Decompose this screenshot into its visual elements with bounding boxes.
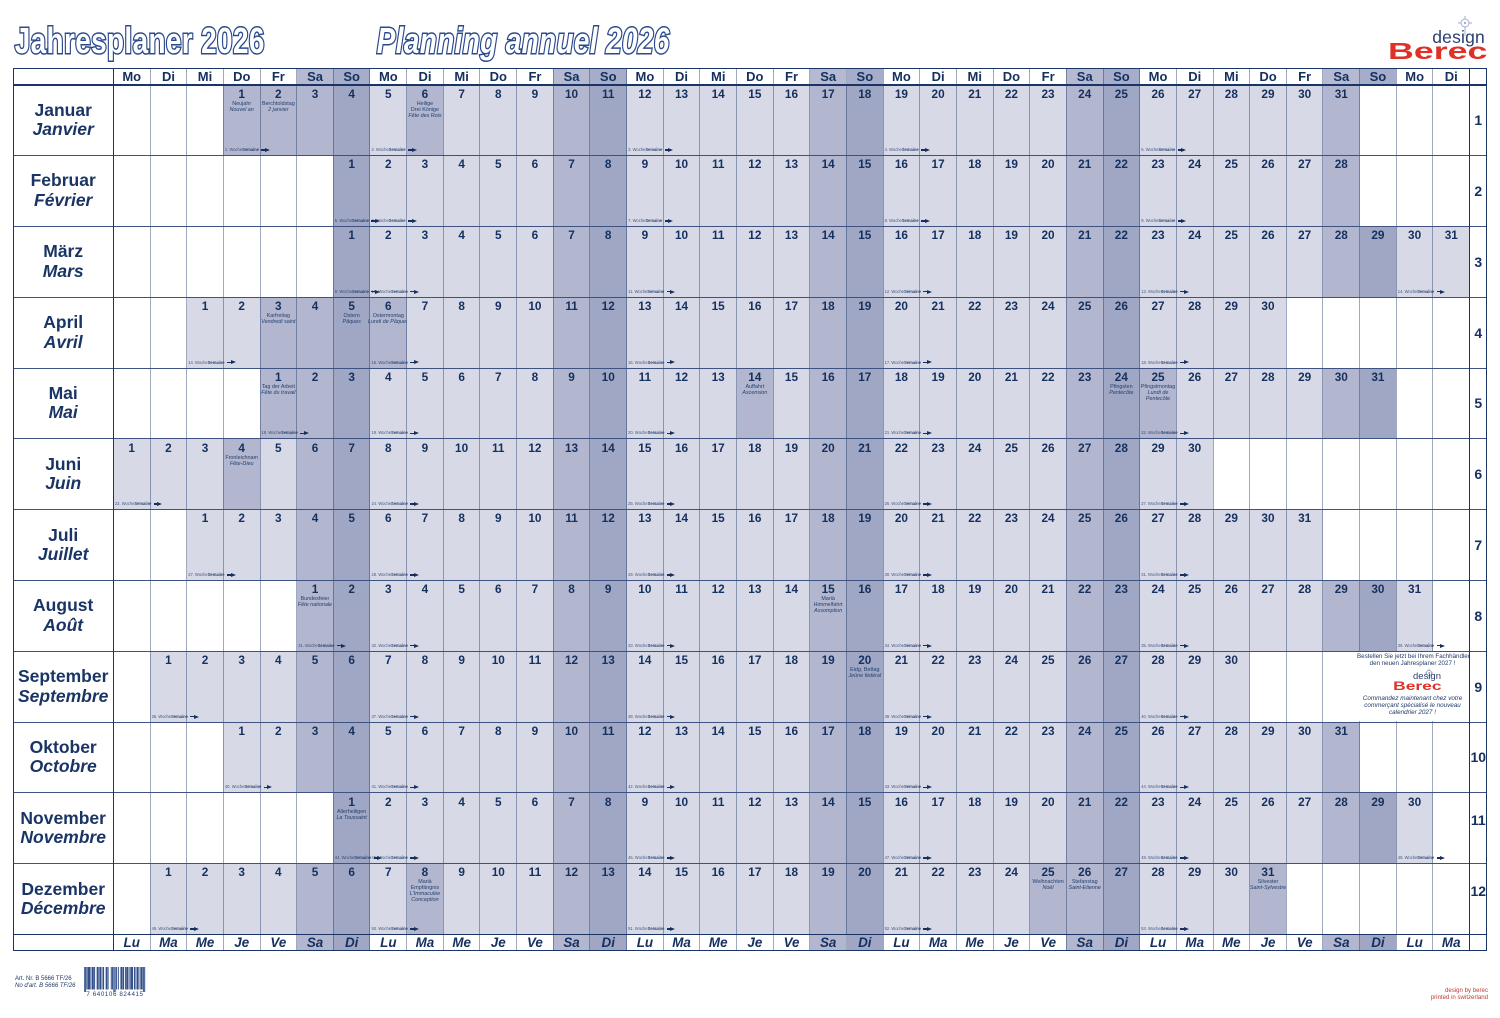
svg-text:Planning annuel 2026: Planning annuel 2026 [377, 21, 670, 61]
svg-text:Jahresplaner 2026: Jahresplaner 2026 [15, 21, 265, 61]
